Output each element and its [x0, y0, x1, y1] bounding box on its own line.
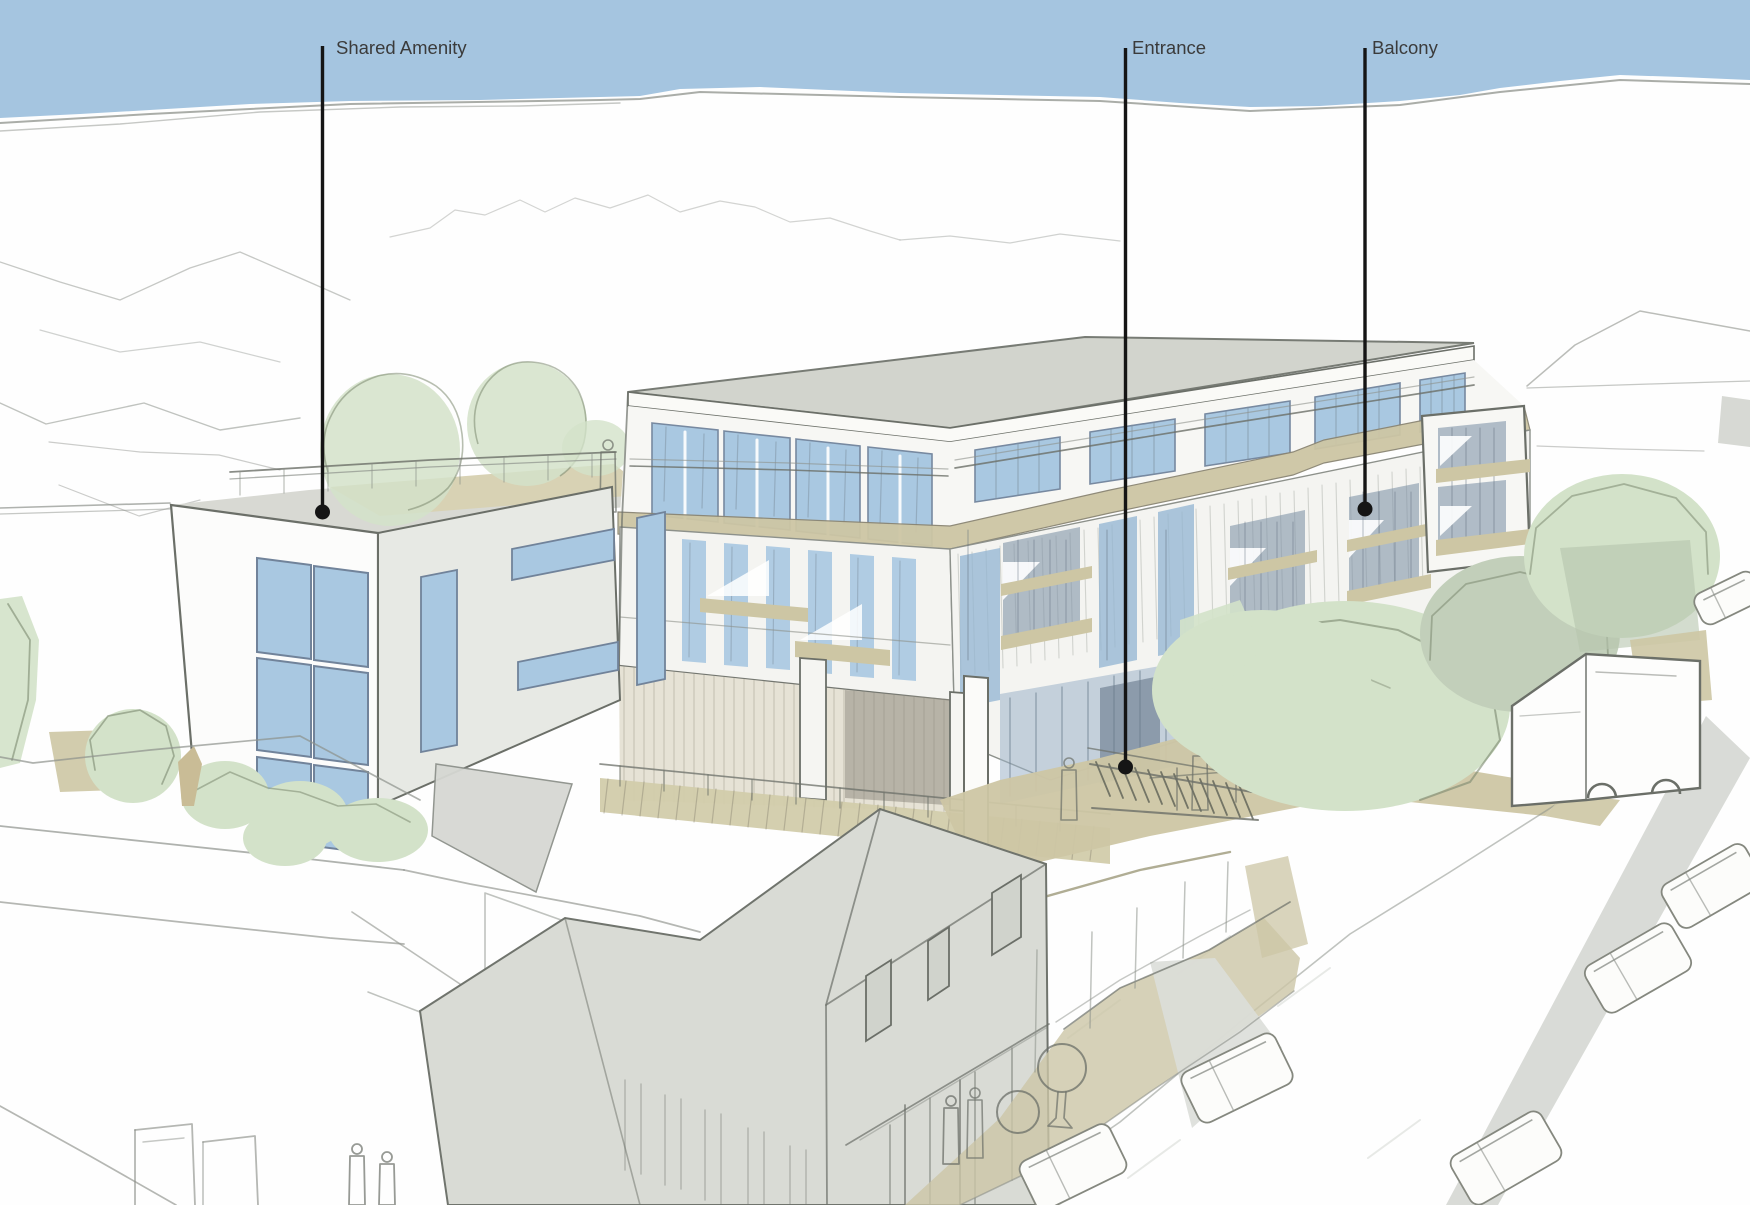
svg-text:Balcony: Balcony: [1372, 37, 1439, 58]
svg-text:Entrance: Entrance: [1132, 37, 1206, 58]
svg-text:Shared Amenity: Shared Amenity: [336, 37, 467, 58]
